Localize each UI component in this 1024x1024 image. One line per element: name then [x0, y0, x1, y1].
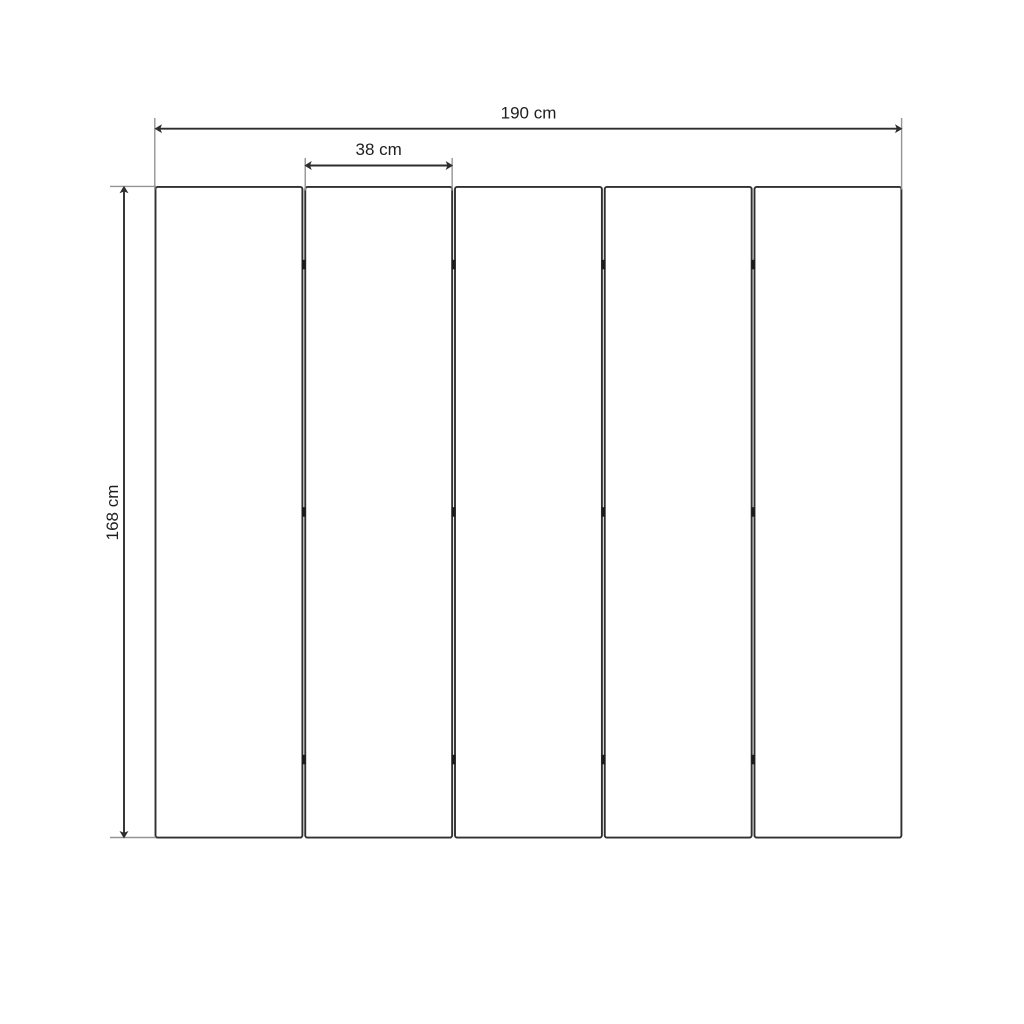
- svg-text:168 cm: 168 cm: [103, 485, 122, 541]
- svg-text:38 cm: 38 cm: [356, 140, 402, 159]
- svg-text:190 cm: 190 cm: [501, 103, 557, 122]
